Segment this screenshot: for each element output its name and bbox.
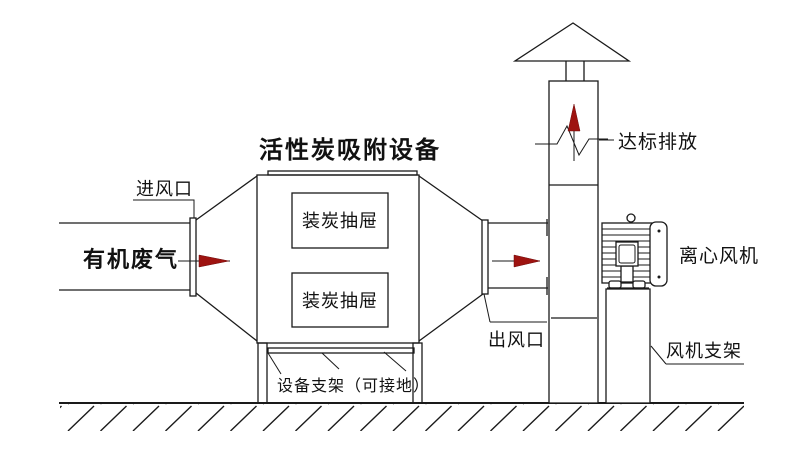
outlet-flange — [482, 220, 488, 294]
centrifugal-fan: 离心风机 — [602, 214, 759, 288]
adsorption-box — [257, 175, 419, 343]
motor-end-cap-bolt-top — [658, 230, 661, 233]
outlet-cone-top-line — [419, 176, 483, 221]
outlet-duct: 出风口 — [482, 219, 548, 351]
motor-eyebolt-icon — [627, 214, 635, 222]
outlet-port-label: 出风口 — [488, 330, 545, 351]
outlet-cone-bottom-line — [419, 294, 483, 341]
adsorption-unit: 活性炭吸附设备 装炭抽屉 装炭抽屉 — [196, 136, 483, 343]
rain-cap — [515, 23, 629, 61]
support-brace-left — [268, 353, 281, 374]
diagram-title: 活性炭吸附设备 — [259, 136, 441, 164]
equipment-support: 设备支架（可接地） — [258, 343, 430, 403]
diagram-canvas: 有机废气 进风口 活性炭吸附设备 装炭抽屉 装炭抽屉 设备支架（可接地） — [0, 0, 786, 473]
fan-support: 风机支架 — [606, 289, 744, 403]
motor-foot-right — [633, 281, 645, 288]
support-top-bar — [268, 348, 414, 353]
carbon-drawer-top-label: 装炭抽屉 — [302, 211, 378, 232]
ground-hatching — [60, 404, 744, 431]
outlet-port-leader-line — [484, 294, 490, 322]
inlet-cone-bottom-line — [196, 293, 257, 341]
fan-support-pillar — [606, 289, 650, 403]
support-left-leg — [258, 343, 267, 403]
support-brace-middle — [322, 353, 339, 369]
inlet-flow-arrow-icon — [199, 255, 229, 267]
inlet-port-label: 进风口 — [136, 179, 193, 200]
organic-waste-gas-label: 有机废气 — [83, 247, 179, 273]
outlet-flow-arrow-icon — [514, 255, 540, 267]
carbon-drawer-bottom-label: 装炭抽屉 — [302, 291, 378, 312]
inlet-flange — [190, 218, 196, 296]
support-brace-right — [384, 352, 406, 371]
inlet-duct: 有机废气 进风口 — [59, 179, 230, 296]
inlet-port-leader-line — [133, 200, 194, 218]
equipment-bracket-label: 设备支架（可接地） — [277, 376, 430, 395]
motor-end-cap-bolt-bottom — [658, 276, 661, 279]
compliant-emission-label: 达标排放 — [618, 131, 698, 153]
fan-bracket-leader-line — [651, 346, 666, 364]
ground — [59, 403, 744, 431]
adsorption-system-diagram: 有机废气 进风口 活性炭吸附设备 装炭抽屉 装炭抽屉 设备支架（可接地） — [0, 0, 786, 473]
centrifugal-fan-label: 离心风机 — [679, 245, 759, 267]
motor-foot-left — [609, 281, 621, 288]
fan-bracket-label: 风机支架 — [666, 341, 742, 362]
box-top-flange — [268, 171, 417, 175]
motor-stem — [621, 266, 633, 282]
inlet-cone-top-line — [196, 176, 257, 220]
